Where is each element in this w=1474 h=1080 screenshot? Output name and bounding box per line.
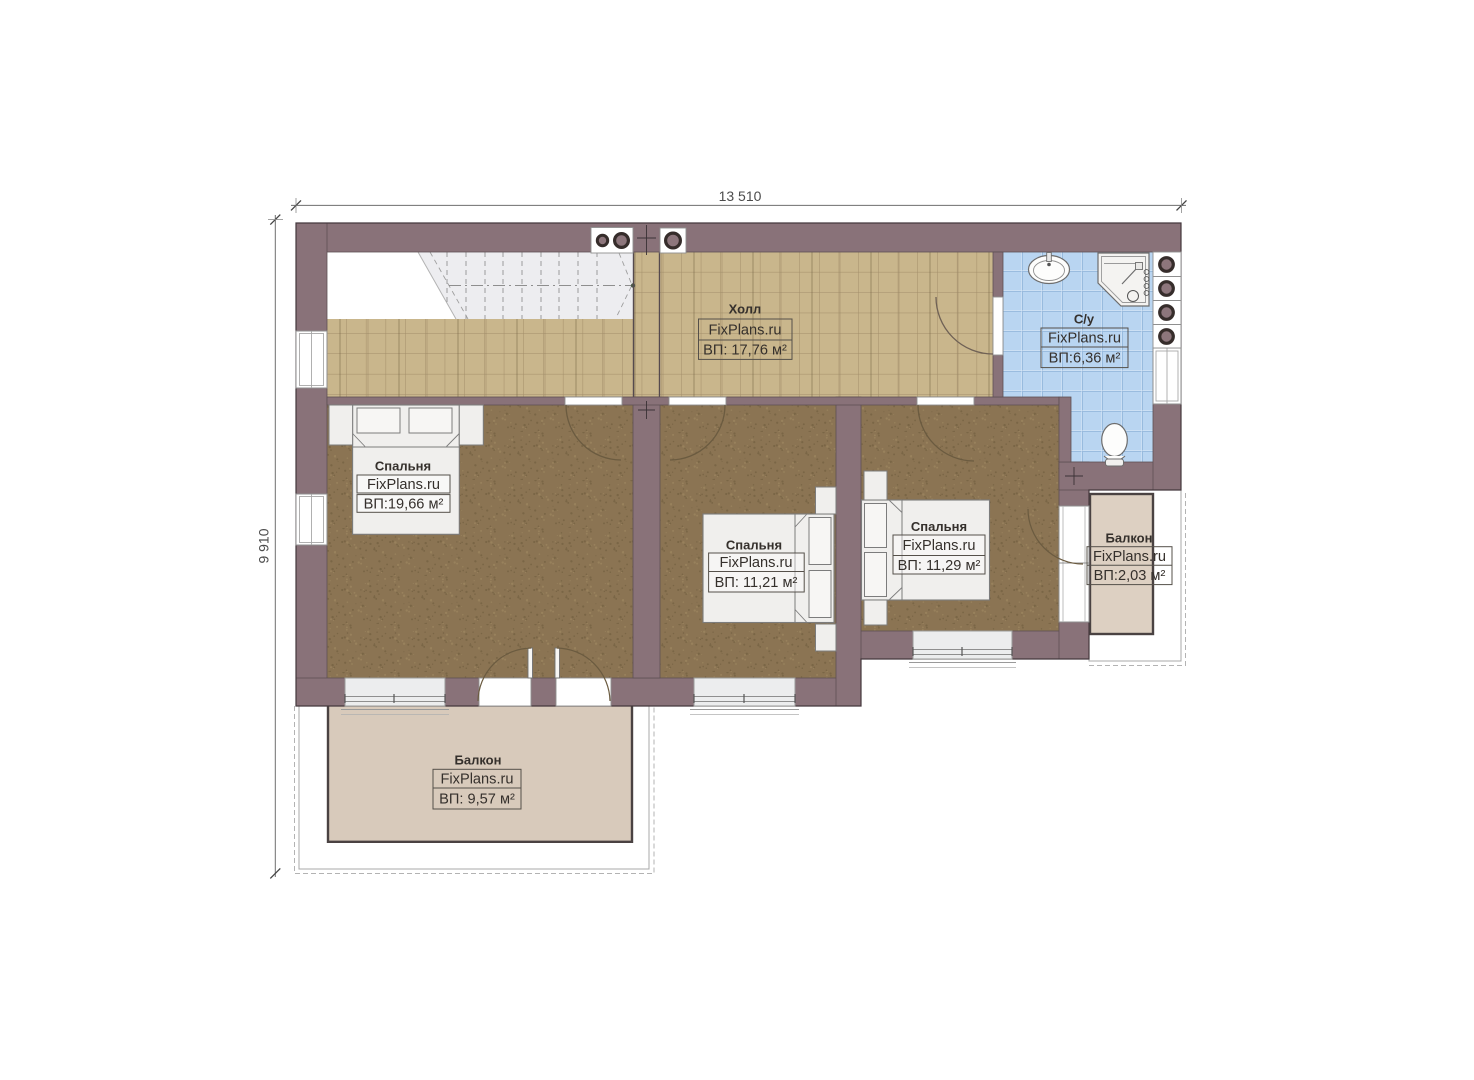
svg-text:FixPlans.ru: FixPlans.ru: [1048, 331, 1121, 347]
svg-text:13 510: 13 510: [719, 188, 762, 204]
svg-text:Спальня: Спальня: [911, 519, 967, 534]
svg-text:С/у: С/у: [1074, 312, 1095, 327]
svg-text:ВП:2,03 м²: ВП:2,03 м²: [1094, 568, 1166, 584]
svg-text:FixPlans.ru: FixPlans.ru: [441, 772, 514, 788]
svg-text:FixPlans.ru: FixPlans.ru: [709, 323, 782, 339]
svg-text:Балкон: Балкон: [455, 753, 502, 768]
svg-text:ВП:19,66 м²: ВП:19,66 м²: [364, 497, 444, 513]
svg-text:ВП: 17,76 м²: ВП: 17,76 м²: [703, 343, 787, 359]
svg-text:Спальня: Спальня: [726, 538, 782, 553]
svg-text:Холл: Холл: [729, 302, 762, 317]
svg-text:9 910: 9 910: [256, 528, 272, 563]
svg-text:FixPlans.ru: FixPlans.ru: [1093, 549, 1166, 565]
svg-text:FixPlans.ru: FixPlans.ru: [720, 555, 793, 571]
svg-text:ВП: 9,57 м²: ВП: 9,57 м²: [439, 792, 515, 808]
svg-text:FixPlans.ru: FixPlans.ru: [367, 477, 440, 493]
svg-text:FixPlans.ru: FixPlans.ru: [903, 538, 976, 554]
svg-text:ВП: 11,21 м²: ВП: 11,21 м²: [715, 575, 798, 591]
svg-text:Спальня: Спальня: [375, 459, 431, 474]
svg-text:ВП: 11,29 м²: ВП: 11,29 м²: [898, 558, 981, 574]
svg-text:ВП:6,36 м²: ВП:6,36 м²: [1049, 351, 1121, 367]
svg-text:Балкон: Балкон: [1106, 531, 1153, 546]
